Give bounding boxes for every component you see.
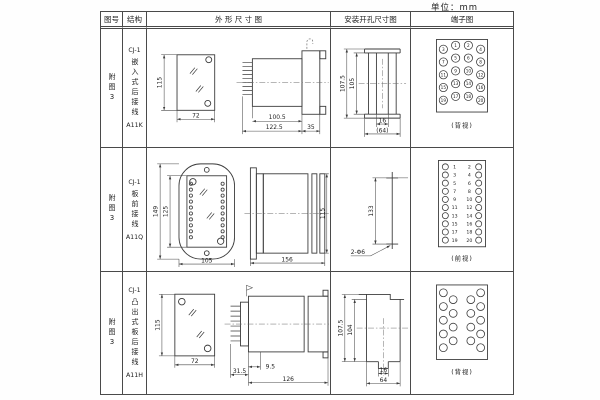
terminal-number: 1 — [454, 43, 457, 48]
terminal-cell: 1 3 5 7 9 11 13 15 17 19 2 4 6 8 10 12 1 — [411, 148, 513, 272]
terminal-number: 2 — [467, 43, 470, 48]
outline-cell: 115 72 100.5 122.5 — [147, 29, 331, 148]
terminal-number: 18 — [466, 230, 472, 236]
side-view: 9.5 31.5 126 — [225, 285, 329, 385]
dim-label: 72 — [191, 358, 199, 365]
dim-label: 72 — [192, 112, 200, 119]
dim-label: 156 — [281, 257, 293, 264]
terminal-number: 15 — [452, 221, 458, 227]
terminal-number: 10 — [466, 197, 472, 203]
terminal-block-front: 1 3 5 7 9 11 13 15 17 19 2 4 6 8 10 12 1 — [438, 160, 485, 262]
terminal-number: 2 — [468, 165, 471, 171]
terminal-number: 8 — [479, 60, 482, 65]
side-view: 100.5 122.5 35 — [237, 39, 329, 134]
terminal-number: 19 — [452, 238, 458, 244]
dim-label: 122.5 — [266, 124, 283, 131]
dim-label: 115 — [154, 319, 161, 331]
mount-type-label: 嵌入式后接线 — [131, 58, 138, 118]
terminal-number: 8 — [468, 189, 471, 195]
structure-cell: CJ-1 嵌入式后接线 A11K — [123, 29, 147, 148]
terminal-number: 20 — [466, 238, 472, 244]
terminal-number: 5 — [453, 181, 456, 187]
outline-drawing-a11k: 115 72 100.5 122.5 — [147, 29, 330, 147]
terminal-drawing-a11k: 1 2 3 4 5 6 7 8 9 10 11 12 13 14 15 16 1 — [411, 29, 513, 147]
terminal-drawing-a11q: 1 3 5 7 9 11 13 15 17 19 2 4 6 8 10 12 1 — [411, 148, 513, 271]
dim-label: 104 — [348, 324, 354, 336]
outline-cell: 149 125 105 156 115 — [147, 148, 331, 272]
model-label: CJ-1 — [128, 287, 140, 294]
dim-label: 149 — [153, 206, 160, 218]
drill-view: 133 2-Φ6 — [351, 172, 408, 256]
terminal-number: 15 — [441, 85, 447, 90]
fig-no: 附图3 — [108, 73, 115, 104]
hole-note: 2-Φ6 — [351, 250, 366, 256]
front-view: 149 125 105 — [153, 164, 235, 267]
fig-no-cell: 附图3 — [101, 29, 123, 148]
terminal-cell: 1 2 3 4 5 6 7 8 9 10 11 12 13 14 15 16 1 — [411, 29, 513, 148]
header-structure: 结构 — [123, 12, 147, 29]
dim-label: 125 — [163, 206, 170, 218]
terminal-block-rear: 1 2 3 4 5 6 7 8 9 10 11 12 13 14 15 16 1 — [437, 39, 488, 129]
front-view: 115 72 — [157, 55, 215, 122]
view-label: (背视) — [451, 367, 473, 376]
terminal-block-rear: (背视) — [437, 285, 488, 376]
terminal-number: 1 — [453, 165, 456, 171]
fig-no-cell: 附图3 — [101, 148, 123, 272]
terminal-number: 13 — [453, 81, 459, 86]
code-label: A11K — [126, 122, 142, 129]
terminal-number: 17 — [452, 230, 458, 236]
dim-label: 35 — [307, 124, 315, 131]
mount-type-label: 凸出式板后接线 — [131, 298, 138, 368]
code-label: A11H — [126, 372, 143, 379]
terminal-number: 4 — [468, 173, 471, 179]
terminal-cell: (背视) — [411, 272, 513, 394]
terminal-number: 20 — [478, 98, 484, 103]
outline-drawing-a11h: 115 72 9.5 31.5 — [147, 272, 330, 394]
structure-cell: CJ-1 板前接线 A11Q — [123, 148, 147, 272]
header-mounting: 安装开孔尺寸图 — [331, 12, 411, 29]
outline-cell: 115 72 9.5 31.5 — [147, 272, 331, 394]
spec-table: 图号 结构 外 形 尺 寸 图 安装开孔尺寸图 端子图 附图3 CJ-1 嵌入式… — [100, 11, 514, 395]
code-label: A11Q — [126, 234, 143, 241]
mounting-cell: 107.5 104 16 64 — [331, 272, 411, 394]
dim-label: 16 — [379, 119, 387, 125]
terminal-number: 10 — [466, 68, 472, 73]
fig-no-cell: 附图3 — [101, 272, 123, 394]
document-page: 单位：mm 图号 结构 外 形 尺 寸 图 安装开孔尺寸图 端子图 附图3 CJ… — [0, 0, 600, 400]
header-fig: 图号 — [101, 12, 123, 29]
model-label: CJ-1 — [128, 47, 140, 54]
terminal-number: 5 — [454, 56, 457, 61]
dim-label: 107.5 — [338, 319, 344, 336]
view-label: (前视) — [451, 254, 473, 263]
terminal-number: 11 — [441, 72, 447, 77]
dim-label: 105 — [201, 258, 213, 265]
mounting-cell: 133 2-Φ6 — [331, 148, 411, 272]
terminal-number: 11 — [452, 205, 458, 211]
mounting-drawing-a11q: 133 2-Φ6 — [331, 148, 410, 271]
dim-label: 105 — [350, 78, 356, 90]
cutout-view: 107.5 104 16 64 — [338, 294, 408, 386]
terminal-number: 12 — [466, 205, 472, 211]
terminal-drawing-a11h: (背视) — [411, 272, 513, 394]
terminal-number: 3 — [442, 47, 445, 52]
terminal-number: 6 — [467, 56, 470, 61]
mounting-cell: 107.5 105 16 (64) — [331, 29, 411, 148]
terminal-number: 9 — [453, 197, 456, 203]
terminal-number: 19 — [441, 98, 447, 103]
dim-label: 31.5 — [233, 368, 246, 375]
structure-cell: CJ-1 凸出式板后接线 A11H — [123, 272, 147, 394]
terminal-number: 14 — [466, 213, 472, 219]
mount-type-label: 板前接线 — [131, 190, 138, 230]
dim-label: 107.5 — [340, 75, 346, 92]
dim-label: 100.5 — [269, 114, 286, 121]
terminal-number: 6 — [468, 181, 471, 187]
model-label: CJ-1 — [128, 179, 140, 186]
terminal-number: 17 — [453, 94, 459, 99]
cutout-view: 107.5 105 16 (64) — [340, 49, 406, 137]
terminal-number: 18 — [466, 94, 472, 99]
dim-label: 9.5 — [266, 363, 276, 370]
outline-drawing-a11q: 149 125 105 156 115 — [147, 148, 330, 271]
terminal-number: 16 — [466, 221, 472, 227]
terminal-number: 9 — [454, 68, 457, 73]
terminal-number: 13 — [452, 213, 458, 219]
front-view: 115 72 — [154, 294, 214, 368]
header-outline: 外 形 尺 寸 图 — [147, 12, 331, 29]
mounting-drawing-a11k: 107.5 105 16 (64) — [331, 29, 410, 147]
terminal-number: 4 — [479, 47, 482, 52]
terminal-number: 14 — [466, 81, 472, 86]
terminal-number: 7 — [442, 60, 445, 65]
dim-label: 126 — [283, 376, 295, 383]
fig-no: 附图3 — [108, 194, 115, 225]
dim-label: 64 — [380, 378, 388, 384]
header-terminal: 端子图 — [411, 12, 513, 29]
side-view: 156 115 — [244, 168, 328, 266]
mounting-drawing-a11h: 107.5 104 16 64 — [331, 272, 410, 394]
terminal-number: 16 — [478, 85, 484, 90]
terminal-number: 7 — [453, 189, 456, 195]
view-label: (背视) — [451, 121, 473, 130]
terminal-number: 12 — [478, 72, 484, 77]
dim-label: (64) — [376, 128, 388, 134]
dim-label: 115 — [157, 77, 164, 89]
dim-label: 115 — [319, 208, 326, 220]
fig-no: 附图3 — [108, 318, 115, 349]
terminal-number: 3 — [453, 173, 456, 179]
dim-label: 133 — [369, 205, 375, 217]
dim-label: 16 — [380, 368, 388, 374]
